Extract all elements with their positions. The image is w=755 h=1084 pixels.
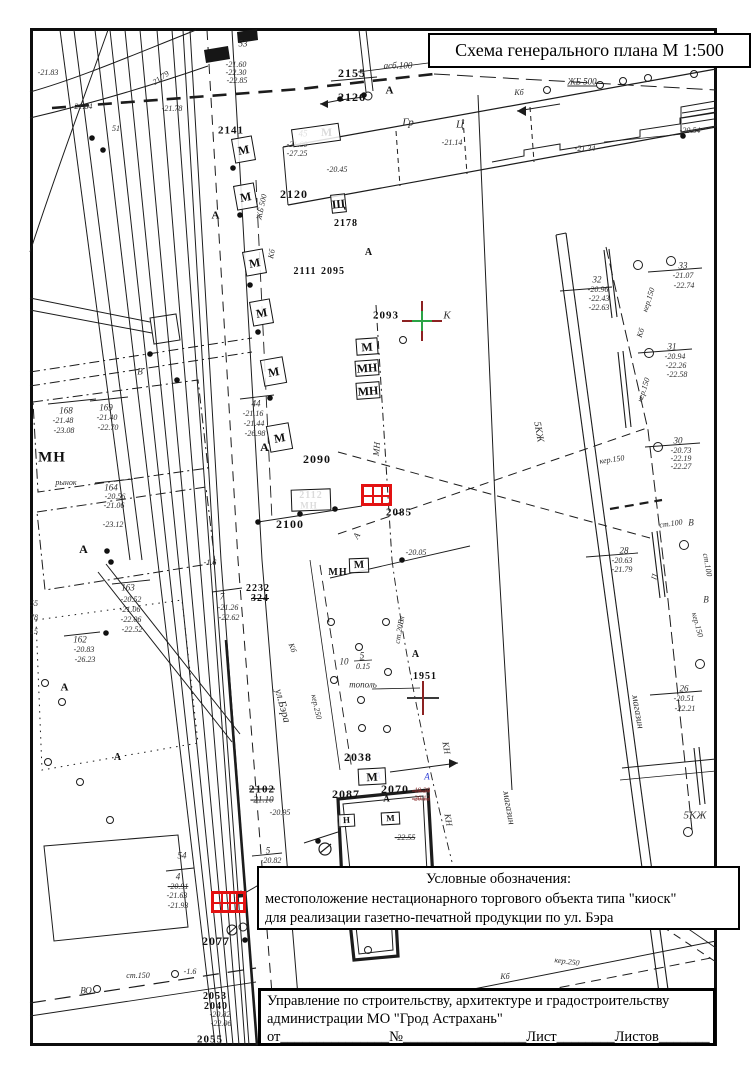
map-label: А <box>61 683 70 694</box>
map-label: Гр <box>402 118 413 129</box>
building-box <box>291 123 341 148</box>
building-box: М <box>233 182 258 210</box>
map-label: Ц <box>456 120 464 131</box>
map-label: Кб <box>267 249 277 260</box>
map-label: 53 <box>239 40 248 49</box>
map-label: А <box>383 795 391 804</box>
map-label: асб.100 <box>384 62 413 71</box>
map-label: 324 <box>251 594 269 604</box>
map-label: КН <box>440 741 451 755</box>
map-label: 54 <box>178 852 187 861</box>
map-label: -20.56 <box>105 493 126 501</box>
map-label: 33 <box>679 262 688 271</box>
map-label: 2095 <box>321 267 345 277</box>
map-label: -26.23 <box>75 656 96 664</box>
map-label: -21.06 <box>104 502 125 510</box>
map-label: 55 <box>30 600 38 608</box>
map-label: ст.150 <box>126 972 149 980</box>
map-label: -20.05 <box>406 549 427 557</box>
map-label: кер.150 <box>599 454 625 465</box>
map-label: 10 <box>340 658 349 667</box>
building-box: М <box>381 812 401 826</box>
map-label: 2178 <box>334 219 358 229</box>
map-label: КН <box>442 813 453 827</box>
map-label: 163 <box>121 584 135 593</box>
map-label: -20.83 <box>74 646 95 654</box>
map-label: 30 <box>674 437 683 446</box>
map-label: -21.79 <box>149 70 171 88</box>
building-box: М <box>231 135 256 163</box>
map-label: -21.26 <box>218 604 239 612</box>
map-label: кер.150 <box>690 612 704 638</box>
map-label: -21.63 <box>167 892 188 900</box>
map-label: -20.82 <box>210 1011 231 1019</box>
legend-line-2: для реализации газетно-печатной продукци… <box>265 909 732 929</box>
map-label: -21.84 <box>72 103 93 111</box>
map-label: МН <box>38 451 66 466</box>
map-label: -22.06 <box>121 616 142 624</box>
map-label: 32 <box>593 276 602 285</box>
map-label: ВО <box>80 987 92 996</box>
map-label: Кб <box>514 89 523 97</box>
map-label: -21.16 <box>243 410 264 418</box>
map-label: 51 <box>112 125 120 133</box>
map-label: 0.15 <box>356 663 370 671</box>
building-box: М <box>242 248 267 276</box>
map-label: -22.21 <box>675 705 696 713</box>
map-label: -22.27 <box>671 463 692 471</box>
building-box: М <box>355 337 378 355</box>
map-label: -20.96 <box>588 286 609 294</box>
map-label: ул.Бэра <box>272 688 292 724</box>
map-label: Кб <box>636 327 646 338</box>
map-label: 168 <box>59 407 73 416</box>
map-label: А <box>365 248 373 258</box>
map-label: 2087 <box>332 788 360 800</box>
map-label: -20.54 <box>680 127 701 135</box>
map-label: кер.150 <box>636 377 651 403</box>
map-label: 2077 <box>202 935 230 947</box>
building-box: М <box>349 558 370 574</box>
map-label: 28 <box>620 547 629 556</box>
map-label: В <box>688 519 694 528</box>
map-label: Кб <box>287 642 298 654</box>
kiosk-marker <box>361 484 392 506</box>
map-label: -22.85 <box>227 77 248 85</box>
map-label: В <box>703 596 709 605</box>
map-label: 5КЖ <box>531 421 544 443</box>
plan-title-box: Схема генерального плана М 1:500 <box>428 33 751 68</box>
map-label: кер.250 <box>554 956 580 967</box>
map-label: -21.83 <box>38 69 59 77</box>
map-label: В <box>137 368 143 377</box>
map-label: -20.95 <box>270 809 291 817</box>
legend-heading: Условные обозначения: <box>265 870 732 890</box>
map-label: 44 <box>252 400 261 409</box>
legend-box: Условные обозначения: местоположение нес… <box>257 866 740 930</box>
map-label: -22.74 <box>674 282 695 290</box>
map-label: -22.62 <box>219 614 240 622</box>
map-label: -22.63 <box>589 304 610 312</box>
map-label: 2055 <box>197 1035 223 1046</box>
map-label: -22.58 <box>667 371 688 379</box>
map-label: -27.25 <box>287 150 308 158</box>
map-label: -21.48 <box>53 417 74 425</box>
survey-cross <box>422 681 424 715</box>
map-label: кер.150 <box>641 287 656 313</box>
building-box: М <box>260 356 287 387</box>
map-label: -23.08 <box>54 427 75 435</box>
map-label: кер.250 <box>309 694 322 720</box>
map-label: -22.06 <box>211 1020 232 1028</box>
map-label: -20.52 <box>121 596 142 604</box>
map-label: -22.70 <box>98 424 119 432</box>
map-label: -21.40 <box>97 414 118 422</box>
map-label: А <box>352 531 363 540</box>
map-label: магазин <box>629 694 645 729</box>
map-label: -21.34 <box>575 145 596 153</box>
map-label: 1951 <box>413 672 437 682</box>
building-box: М <box>358 767 387 785</box>
map-label: -20.45 <box>327 166 348 174</box>
title-block-line-1: Управление по строительству, архитектуре… <box>267 992 707 1010</box>
building-box: Щ <box>330 193 347 213</box>
map-label: ст.100 <box>659 518 683 529</box>
map-label: МН <box>372 442 382 457</box>
title-block: Управление по строительству, архитектуре… <box>258 988 716 1046</box>
map-label: 2120 <box>280 188 308 200</box>
map-label: -22.43 <box>589 295 610 303</box>
map-label: А <box>114 753 122 763</box>
legend-line-1: местоположение нестационарного торгового… <box>265 890 732 910</box>
map-label: -20.91 <box>168 883 189 891</box>
map-label: -21.07 <box>673 272 694 280</box>
map-label: 5 <box>266 847 271 856</box>
map-label: 5КЖ <box>684 811 707 822</box>
map-label: -20.51 <box>674 695 695 703</box>
title-block-line-2: администрации МО "Грод Астрахань" <box>267 1010 707 1028</box>
map-label: магазин <box>500 790 516 825</box>
building-box: М <box>249 298 274 326</box>
map-label: 2100 <box>276 518 304 530</box>
map-label: -22.55 <box>395 834 416 842</box>
map-label: 2090 <box>303 453 331 465</box>
map-label: 2155 <box>338 67 366 79</box>
map-label: 2111 <box>294 267 317 277</box>
kiosk-marker <box>211 891 246 913</box>
map-label: 7 <box>220 593 225 602</box>
map-label: -21.14 <box>442 139 463 147</box>
building-box <box>291 488 332 511</box>
title-block-line-3: от_______________№_________________Лист_… <box>267 1028 707 1046</box>
map-label: ЖБ 500 <box>567 78 596 87</box>
survey-cross <box>421 311 423 331</box>
map-label: -21.78 <box>162 105 183 113</box>
map-label: МН <box>328 568 347 578</box>
map-label: А <box>412 650 420 660</box>
map-label: К <box>443 311 450 322</box>
map-label: -20.94 <box>665 353 686 361</box>
map-label: -22.26 <box>666 362 687 370</box>
building-box: М <box>266 422 293 453</box>
map-label: 4 <box>176 873 181 882</box>
map-label: 2126 <box>338 91 366 103</box>
map-label: 2093 <box>373 311 399 322</box>
building-box: МН <box>354 359 379 377</box>
map-label: ст.20Вл <box>394 616 407 645</box>
map-label: П <box>650 573 659 581</box>
map-label: рынок <box>55 479 76 487</box>
map-label: 2141 <box>218 126 244 137</box>
building-box: МН <box>355 381 380 400</box>
map-label: 162 <box>73 636 87 645</box>
map-label: -21.10 <box>250 796 273 805</box>
map-label: -21.93 <box>168 902 189 910</box>
map-label: -21.79 <box>612 566 633 574</box>
map-label: 31 <box>668 343 677 352</box>
map-label: 2038 <box>344 751 372 763</box>
map-label: -1.6 <box>204 559 217 567</box>
map-label: -22.52 <box>122 626 143 634</box>
map-label: 26 <box>680 685 689 694</box>
map-label: -26.98 <box>245 430 266 438</box>
map-label: -21.06 <box>120 606 141 614</box>
map-label: -1.6 <box>184 968 197 976</box>
map-label: 15 <box>30 628 38 636</box>
map-label: -20.12 <box>412 796 430 803</box>
map-label: ст.100 <box>701 553 713 577</box>
map-label: -20.82 <box>261 857 282 865</box>
map-label: тополь <box>349 681 377 690</box>
map-label: 5 <box>360 652 365 661</box>
map-label: -20.63 <box>612 557 633 565</box>
scanned-site-plan-page: 53-21.60-22.30-22.85-21.83-21.79-21.84-2… <box>0 0 755 1084</box>
map-label: 78 <box>30 614 38 622</box>
map-label: Кб <box>500 973 509 981</box>
map-label: А <box>424 773 430 782</box>
map-label: -21.44 <box>244 420 265 428</box>
map-label: 2085 <box>386 508 412 519</box>
map-label: А <box>212 211 221 222</box>
map-label: А <box>386 86 395 97</box>
map-label: -19.20 <box>412 788 430 795</box>
map-label: А <box>79 543 89 555</box>
map-label: 169 <box>99 404 113 413</box>
map-label: -23.12 <box>103 521 124 529</box>
building-box: Н <box>338 814 356 828</box>
plan-title: Схема генерального плана М 1:500 <box>455 40 724 61</box>
